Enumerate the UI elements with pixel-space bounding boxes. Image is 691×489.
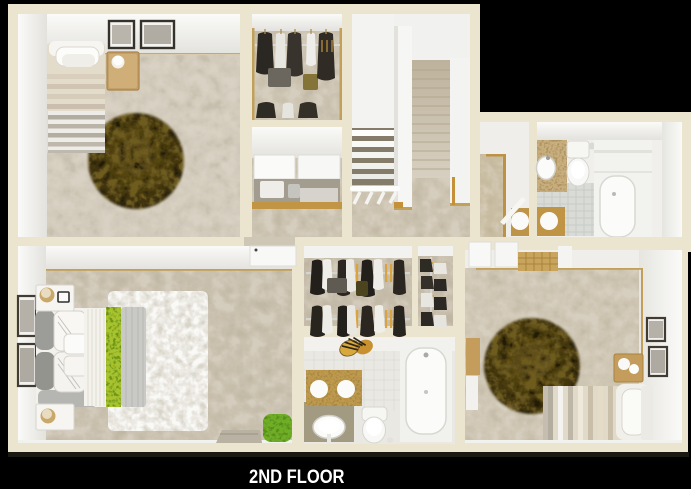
svg-text:2ND FLOOR: 2ND FLOOR	[249, 466, 345, 488]
